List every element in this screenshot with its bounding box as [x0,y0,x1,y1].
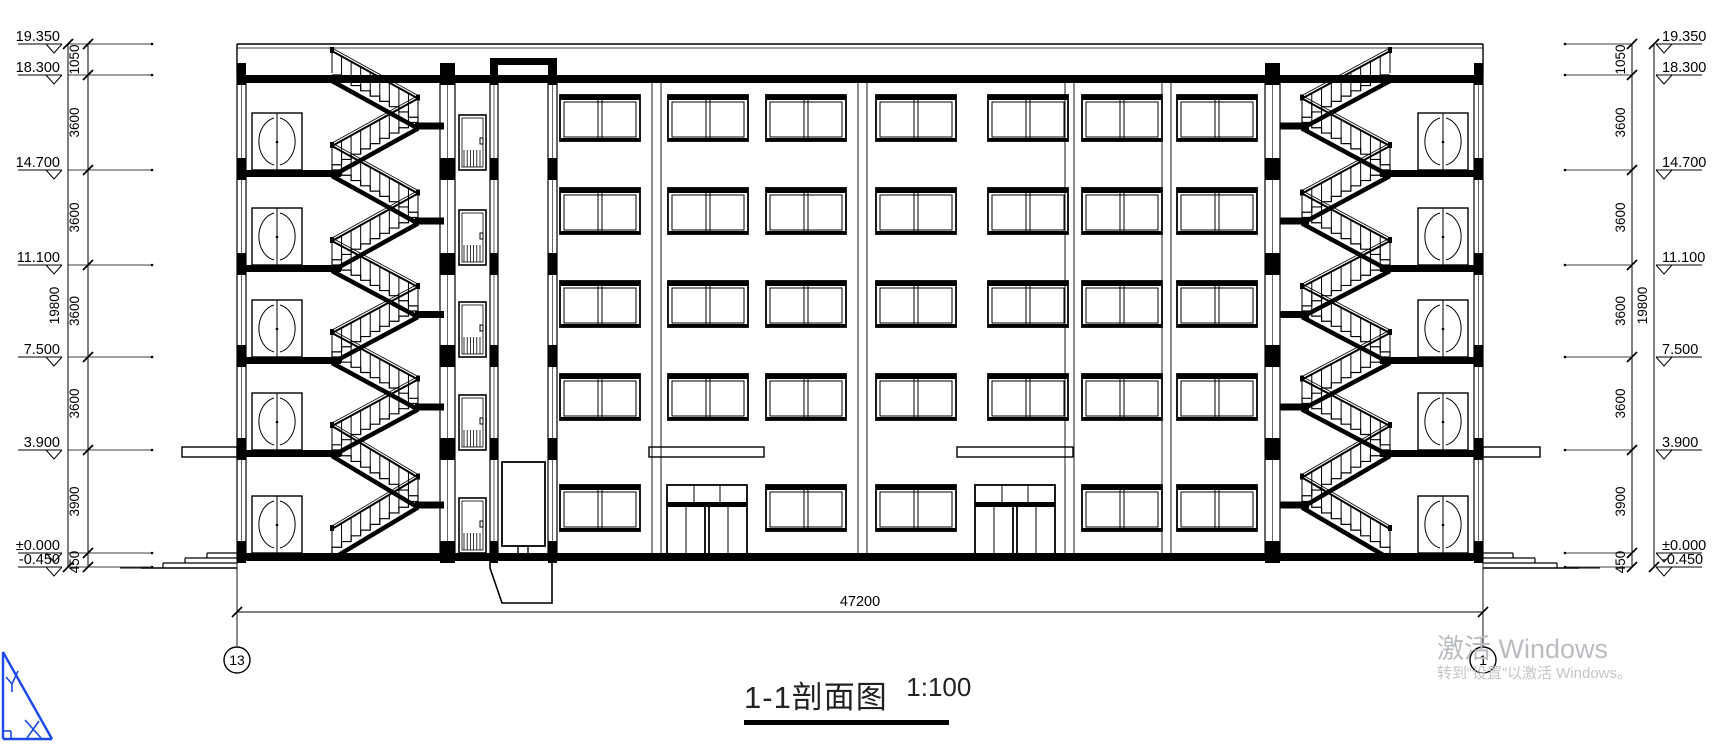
scale-label: 1:100 [906,672,971,703]
svg-text:18.300: 18.300 [1662,60,1706,76]
window [1082,95,1162,141]
elevator-car [502,462,545,557]
svg-text:3600: 3600 [1613,296,1628,326]
windows-grid [560,95,1257,531]
section-title-block: 1-1剖面图 1:100 [744,672,971,725]
window [1177,281,1257,327]
swing-door [1418,496,1468,553]
window [560,95,640,141]
swing-door [252,300,302,357]
svg-text:3600: 3600 [1613,202,1628,232]
window [1082,188,1162,234]
window [876,485,956,531]
svg-text:19800: 19800 [47,287,62,325]
window [766,281,846,327]
svg-text:1050: 1050 [67,44,82,74]
svg-text:19.350: 19.350 [1662,29,1706,45]
window [560,188,640,234]
exterior-steps [1483,553,1579,568]
louvered-door [459,498,486,553]
window [668,188,748,234]
swing-door [252,113,302,170]
svg-text:450: 450 [67,551,82,574]
watermark-line2: 转到“设置”以激活 Windows。 [1437,664,1632,684]
svg-text:11.100: 11.100 [17,250,60,266]
svg-text:18.300: 18.300 [16,60,60,76]
svg-text:1050: 1050 [1613,44,1628,74]
window [1082,485,1162,531]
entrance-door [667,485,747,560]
window [766,485,846,531]
canopy [1483,447,1540,457]
svg-text:-0.450: -0.450 [19,552,60,568]
louvered-door [459,210,486,265]
roof-parapet [237,44,1483,83]
swing-door [252,393,302,450]
louvered-door [459,395,486,450]
window [988,281,1068,327]
svg-text:3600: 3600 [1613,107,1628,137]
svg-text:3600: 3600 [67,296,82,326]
title-underline [744,720,949,725]
drafting-triangle-logo [3,652,52,739]
window [560,374,640,420]
svg-text:3900: 3900 [67,486,82,516]
svg-text:14.700: 14.700 [16,155,60,171]
stairwell-right [1280,47,1474,560]
window [668,95,748,141]
window [988,374,1068,420]
svg-text:3600: 3600 [67,202,82,232]
window [1177,374,1257,420]
swing-door [252,208,302,265]
swing-door [1418,393,1468,450]
window [766,374,846,420]
window [876,374,956,420]
svg-text:3900: 3900 [1613,486,1628,516]
right-dim-chain: 10503600360036003600390045019800 [1564,39,1659,573]
canopy [957,447,1073,457]
cad-viewport: 19.35018.30014.70011.1007.5003.900±0.000… [0,0,1717,751]
swing-door [1418,113,1468,170]
window [560,281,640,327]
svg-text:3.900: 3.900 [24,435,60,451]
window [1177,485,1257,531]
svg-text:47200: 47200 [840,594,880,610]
swing-door [1418,208,1468,265]
window [988,188,1068,234]
svg-text:3600: 3600 [67,388,82,418]
svg-text:11.100: 11.100 [1662,250,1705,266]
building-section [120,44,1600,603]
svg-text:13: 13 [229,652,245,668]
entrance-door [975,485,1055,560]
window [668,374,748,420]
exterior-steps [141,553,237,568]
svg-text:-0.450: -0.450 [1662,552,1703,568]
svg-text:14.700: 14.700 [1662,155,1706,171]
window [560,485,640,531]
canopy [649,447,764,457]
axis-bubble-13: 13 [224,647,250,673]
svg-text:450: 450 [1613,551,1628,574]
window [1082,281,1162,327]
window [876,95,956,141]
window [1177,95,1257,141]
svg-text:7.500: 7.500 [24,342,60,358]
elevator-pit [490,561,552,603]
bottom-dim: 47200 [232,561,1488,646]
window [766,95,846,141]
watermark-line1: 激活 Windows [1437,634,1632,664]
window [1082,374,1162,420]
louvered-door [459,115,486,170]
svg-text:19.350: 19.350 [16,29,60,45]
window [876,281,956,327]
svg-text:3.900: 3.900 [1662,435,1698,451]
window [876,188,956,234]
swing-door [252,496,302,553]
right-elevation-markers: 19.35018.30014.70011.1007.5003.900±0.000… [1656,29,1706,576]
canopy [182,447,237,457]
window [1177,188,1257,234]
svg-text:19800: 19800 [1635,287,1650,325]
window [668,281,748,327]
window [766,188,846,234]
svg-text:7.500: 7.500 [1662,342,1698,358]
svg-text:3600: 3600 [1613,388,1628,418]
svg-text:3600: 3600 [67,107,82,137]
window [988,95,1068,141]
louvered-door [459,302,486,357]
windows-activation-watermark: 激活 Windows 转到“设置”以激活 Windows。 [1437,634,1632,684]
left-dim-chain: 10503600360036003600390045019800 [47,39,153,573]
stairwell-left [246,47,444,560]
swing-door [1418,300,1468,357]
section-title: 1-1剖面图 [744,672,888,717]
